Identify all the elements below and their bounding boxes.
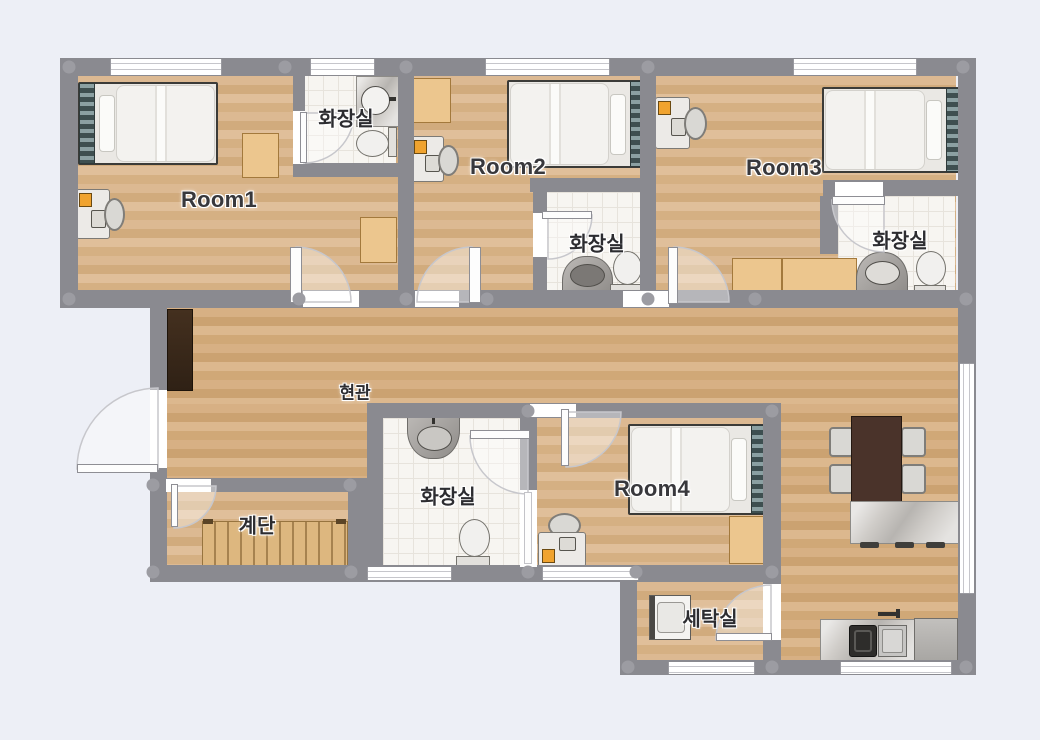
window — [367, 567, 452, 580]
door-leaf — [561, 409, 569, 466]
wall-joint — [957, 61, 970, 74]
bathroom3-label: 화장실 — [872, 225, 927, 254]
wall-joint — [766, 405, 779, 418]
bed — [78, 82, 218, 165]
bed-headboard — [79, 83, 95, 164]
door-leaf — [716, 633, 772, 641]
door-leaf — [300, 112, 307, 163]
window — [485, 59, 610, 75]
wall — [530, 178, 647, 192]
room3-label: Room3 — [746, 155, 822, 181]
door-leaf — [77, 464, 158, 473]
faucet-icon — [896, 609, 900, 618]
toilet-bowl — [916, 251, 946, 286]
wall-joint — [960, 293, 973, 306]
stove — [849, 625, 877, 657]
side-table — [413, 78, 451, 123]
room4-label: Room4 — [614, 476, 690, 502]
door-leaf — [668, 247, 678, 304]
bed — [822, 87, 963, 173]
kitchen-island — [850, 501, 960, 544]
shoe-cabinet — [167, 309, 193, 391]
room2-label: Room2 — [470, 154, 546, 180]
sink-basin — [417, 426, 452, 451]
wall-joint — [766, 661, 779, 674]
toilet-bowl — [356, 130, 389, 157]
stairs-label: 계단 — [239, 510, 276, 539]
window — [668, 662, 755, 674]
dining-chair — [901, 464, 926, 494]
washer-drum — [657, 602, 685, 633]
desk-accent — [79, 193, 92, 207]
desk-accent — [414, 140, 427, 154]
wall-joint — [400, 61, 413, 74]
faucet-icon — [389, 97, 396, 101]
toilet-bowl — [459, 519, 490, 557]
door-leaf — [832, 196, 885, 205]
wall-joint — [749, 293, 762, 306]
desk-accent — [542, 549, 555, 563]
door-leaf — [469, 247, 481, 303]
desk-chair — [684, 107, 707, 140]
desk-accent — [658, 101, 671, 115]
floor-plan: Room1 Room2 Room3 Room4 화장실 화장실 화장실 화장실 … — [0, 0, 1040, 740]
dining-chair — [901, 427, 926, 457]
door-opening — [415, 291, 459, 307]
door-opening — [533, 213, 547, 257]
window — [110, 59, 222, 75]
wall-joint — [522, 405, 535, 418]
door-opening — [763, 584, 781, 640]
door-leaf — [171, 484, 178, 527]
wall — [150, 565, 781, 582]
bathroom4-label: 화장실 — [420, 481, 475, 510]
window — [793, 59, 917, 75]
hall-floor-lower — [166, 404, 367, 480]
wall-joint — [279, 61, 292, 74]
wall-joint — [960, 661, 973, 674]
door-opening — [835, 182, 883, 196]
wall-joint — [293, 293, 306, 306]
bed-pillow — [731, 438, 747, 501]
side-table — [360, 217, 397, 263]
sink-basin — [865, 261, 900, 285]
wall-joint — [147, 479, 160, 492]
refrigerator — [914, 618, 958, 662]
side-table — [782, 258, 857, 293]
wall-joint — [63, 61, 76, 74]
stove-ring — [854, 630, 872, 652]
stair-rail — [336, 519, 346, 524]
window — [960, 363, 974, 594]
wall — [398, 58, 414, 308]
wall — [367, 403, 537, 418]
wall-joint — [147, 566, 160, 579]
side-table — [729, 516, 764, 564]
island-stool — [926, 542, 945, 548]
entrance-label: 현관 — [339, 379, 370, 404]
wall-joint — [522, 566, 535, 579]
door-opening — [150, 390, 167, 468]
window — [542, 567, 639, 580]
wall — [60, 58, 78, 308]
toilet-tank — [388, 127, 397, 157]
wall — [620, 565, 637, 675]
desk-chair — [104, 198, 125, 231]
wall-joint — [642, 61, 655, 74]
door-leaf — [524, 492, 532, 564]
island-stool — [860, 542, 879, 548]
bed-pillow — [926, 100, 942, 159]
door-leaf — [470, 430, 530, 439]
wall-joint — [63, 293, 76, 306]
wall-joint — [766, 566, 779, 579]
room1-label: Room1 — [181, 187, 257, 213]
door-leaf — [542, 211, 592, 219]
door-opening — [530, 404, 576, 417]
entrance-hall-floor — [166, 308, 958, 404]
wall-joint — [642, 293, 655, 306]
island-stool — [895, 542, 914, 548]
desk-laptop — [559, 537, 576, 551]
dining-table — [851, 416, 902, 504]
door-swing-arc — [77, 388, 158, 469]
bed-pillow — [99, 95, 115, 152]
side-table — [242, 133, 279, 178]
door-opening — [303, 291, 359, 307]
bed-duvet — [510, 83, 609, 165]
wall — [520, 418, 537, 490]
bed-duvet — [825, 90, 925, 170]
wall-joint — [344, 479, 357, 492]
bathroom2-label: 화장실 — [569, 228, 624, 257]
wall-joint — [400, 293, 413, 306]
sink-vanity — [856, 252, 908, 295]
wall-joint — [630, 566, 643, 579]
side-table — [732, 258, 782, 293]
window — [840, 662, 952, 674]
laundry-label: 세탁실 — [682, 603, 737, 632]
bed-pillow — [610, 94, 626, 155]
faucet-icon — [432, 417, 435, 424]
wall — [640, 290, 976, 308]
wall-joint — [622, 661, 635, 674]
sink-basin — [570, 264, 605, 287]
wall-joint — [481, 293, 494, 306]
wall — [367, 403, 383, 582]
bathroom1-label: 화장실 — [318, 103, 373, 132]
desk-chair — [438, 145, 459, 176]
wall-joint — [345, 566, 358, 579]
washer-panel — [650, 596, 655, 639]
stair-rail — [203, 519, 213, 524]
bed-duvet — [116, 85, 215, 162]
wall — [293, 163, 398, 177]
window — [310, 59, 375, 75]
wall — [150, 308, 167, 392]
kitchen-sink — [878, 625, 907, 657]
wall — [60, 290, 412, 308]
desk — [538, 532, 586, 567]
kitchen-sink-basin — [882, 629, 903, 653]
